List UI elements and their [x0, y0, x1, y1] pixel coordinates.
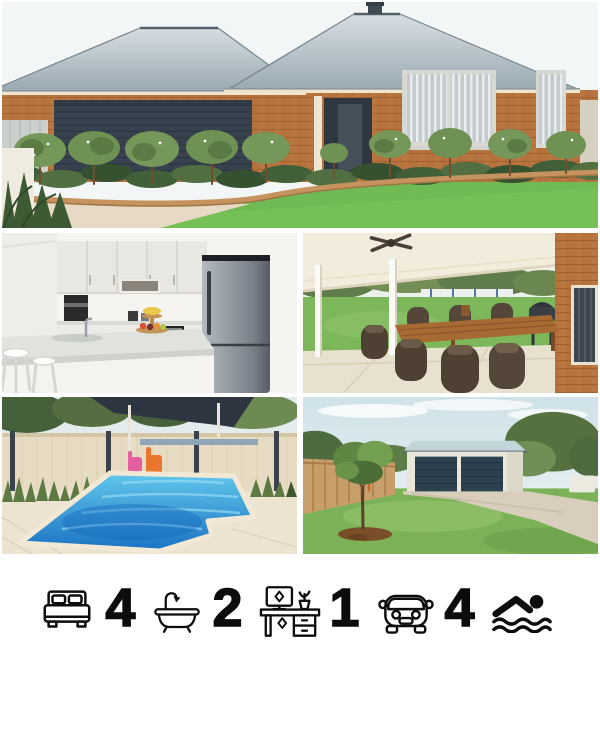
wall-oven: [64, 295, 88, 321]
pool-scene: [2, 397, 297, 554]
property-listing-collage: 4 2: [0, 0, 600, 750]
bed-icon: [38, 588, 96, 634]
water-tank: [569, 476, 595, 493]
patio-scene: [303, 233, 598, 393]
stat-bathrooms: 2: [151, 581, 240, 641]
photo-kitchen: [2, 233, 297, 393]
stat-pool: [491, 589, 562, 633]
bathtub-icon: [151, 586, 203, 636]
collage-row-2: [2, 233, 598, 393]
photo-house-exterior: [2, 2, 598, 228]
swimmer-icon: [491, 589, 553, 633]
roller-door-right: [461, 457, 503, 492]
stat-car-spaces: 4: [376, 581, 473, 641]
roller-door-left: [415, 457, 457, 492]
stat-value: 4: [105, 581, 133, 641]
stat-value: 4: [445, 581, 473, 641]
collage-row-3: [2, 397, 598, 554]
photo-pool: [2, 397, 297, 554]
desk-icon: [259, 585, 321, 637]
backyard-scene: [303, 397, 598, 554]
car-icon: [376, 588, 436, 634]
feature-stats-row: 4 2: [0, 583, 600, 639]
photo-collage: [0, 0, 600, 554]
stat-study: 1: [259, 581, 358, 641]
photo-alfresco-patio: [303, 233, 598, 393]
stat-value: 1: [330, 581, 358, 641]
stat-bedrooms: 4: [38, 581, 133, 641]
shed: [403, 441, 527, 492]
kitchen-scene: [2, 233, 297, 393]
stat-value: 2: [212, 581, 240, 641]
photo-backyard-shed: [303, 397, 598, 554]
house-exterior-scene: [2, 2, 598, 228]
